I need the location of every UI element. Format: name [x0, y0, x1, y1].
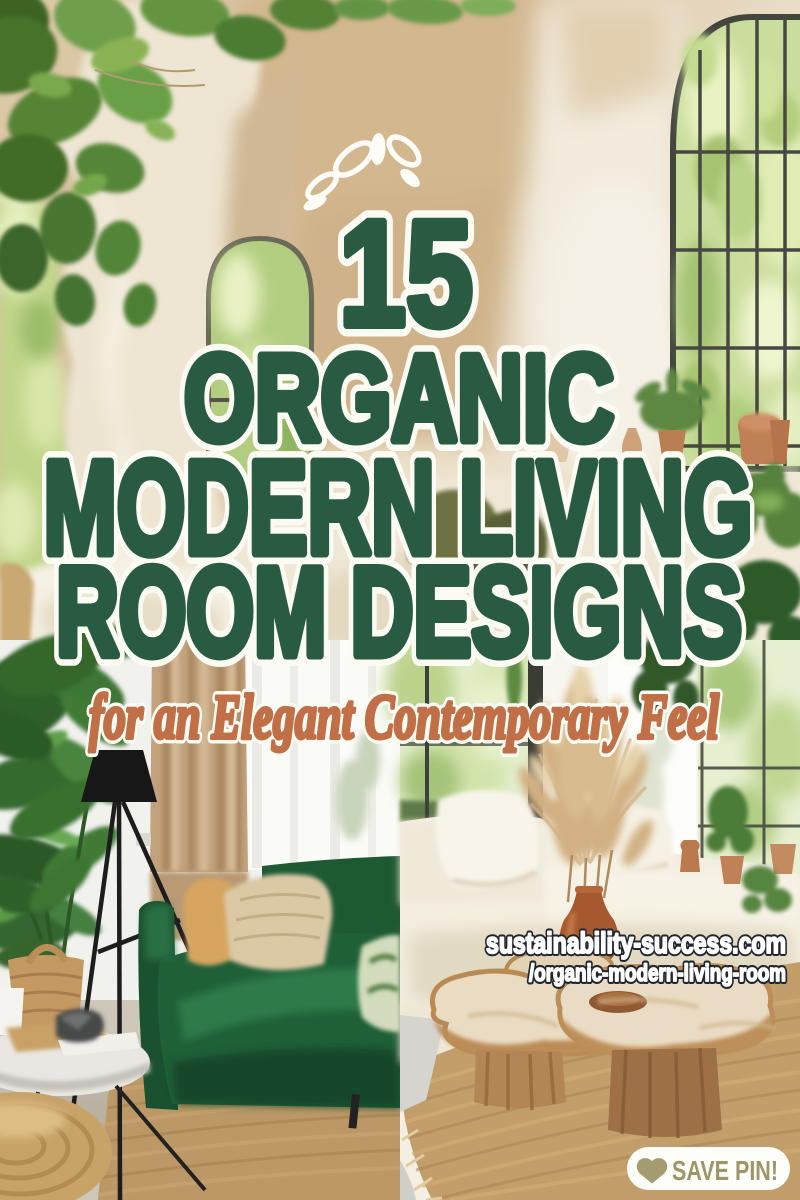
svg-text:for an Elegant Contemporary Fe: for an Elegant Contemporary Feel [89, 681, 719, 752]
svg-text:sustainability-success.com: sustainability-success.com [486, 927, 786, 960]
svg-text:SAVE PIN!: SAVE PIN! [672, 1155, 778, 1186]
svg-text:ROOM DESIGNS: ROOM DESIGNS [56, 543, 742, 682]
svg-text:/organic-modern-living-room: /organic-modern-living-room [529, 960, 786, 987]
